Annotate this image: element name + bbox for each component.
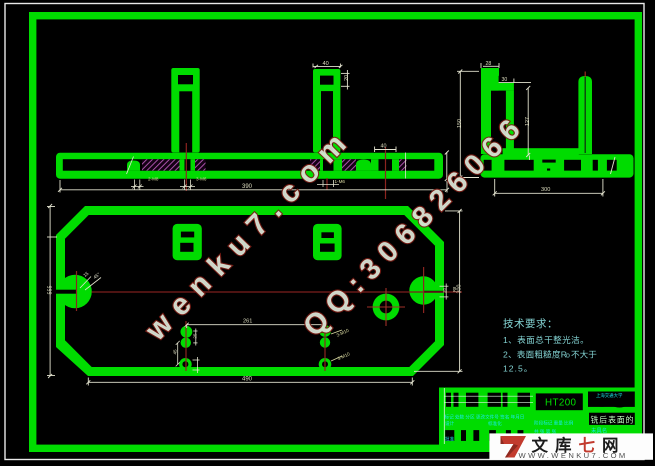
svg-text:300: 300	[457, 285, 463, 294]
svg-text:上海交通大学: 上海交通大学	[596, 392, 623, 399]
svg-text:3-M6: 3-M6	[196, 177, 207, 182]
svg-text:40: 40	[381, 144, 387, 150]
svg-text:标记 处数 分区 更改文件号 签名 年月日: 标记 处数 分区 更改文件号 签名 年月日	[445, 414, 525, 421]
svg-text:1、表面总干整光洁。: 1、表面总干整光洁。	[503, 334, 589, 345]
svg-text:28: 28	[486, 61, 492, 67]
svg-text:20: 20	[442, 287, 447, 292]
svg-text:30: 30	[502, 77, 508, 83]
svg-text:490: 490	[242, 377, 253, 383]
svg-text:40: 40	[323, 61, 329, 67]
svg-text:阶段标记 重量 比例: 阶段标记 重量 比例	[534, 420, 574, 427]
svg-text:技术要求：: 技术要求：	[503, 317, 558, 330]
svg-text:555: 555	[48, 286, 54, 295]
svg-text:1-M6: 1-M6	[335, 179, 346, 184]
svg-text:2、表面粗糙度R: 2、表面粗糙度R	[503, 349, 567, 360]
svg-text:25: 25	[192, 333, 197, 339]
svg-text:261: 261	[243, 319, 252, 325]
svg-text:o: o	[566, 353, 570, 360]
svg-text:20: 20	[344, 75, 350, 81]
svg-text:150: 150	[457, 119, 463, 128]
svg-text:设计: 设计	[445, 420, 455, 427]
svg-text:不大于: 不大于	[571, 349, 597, 360]
svg-text:390: 390	[242, 184, 253, 190]
svg-text:HT200: HT200	[545, 398, 577, 409]
svg-text:12.5。: 12.5。	[503, 364, 533, 374]
svg-text:标准化: 标准化	[488, 420, 502, 427]
svg-text:2-M8: 2-M8	[148, 177, 159, 182]
svg-text:铣后表面的: 铣后表面的	[591, 414, 635, 424]
svg-text:45: 45	[173, 349, 178, 355]
svg-text:300: 300	[541, 187, 550, 193]
svg-text:WWW.WENKU7.COM: WWW.WENKU7.COM	[519, 451, 628, 460]
svg-text:未具名: 未具名	[591, 427, 607, 435]
svg-text:批准: 批准	[445, 436, 455, 443]
svg-text:R8: R8	[452, 286, 457, 292]
